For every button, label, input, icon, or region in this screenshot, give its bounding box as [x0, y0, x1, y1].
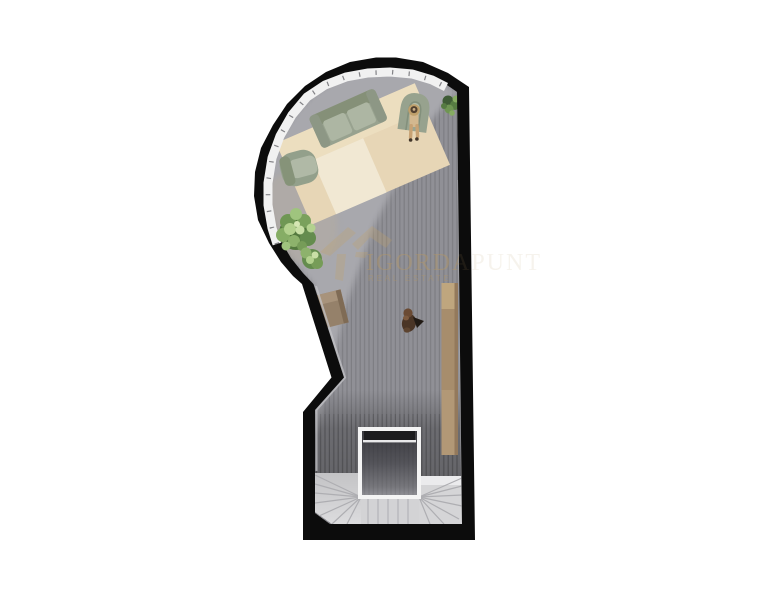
svg-text:REAL ESTATE: REAL ESTATE — [368, 274, 452, 283]
